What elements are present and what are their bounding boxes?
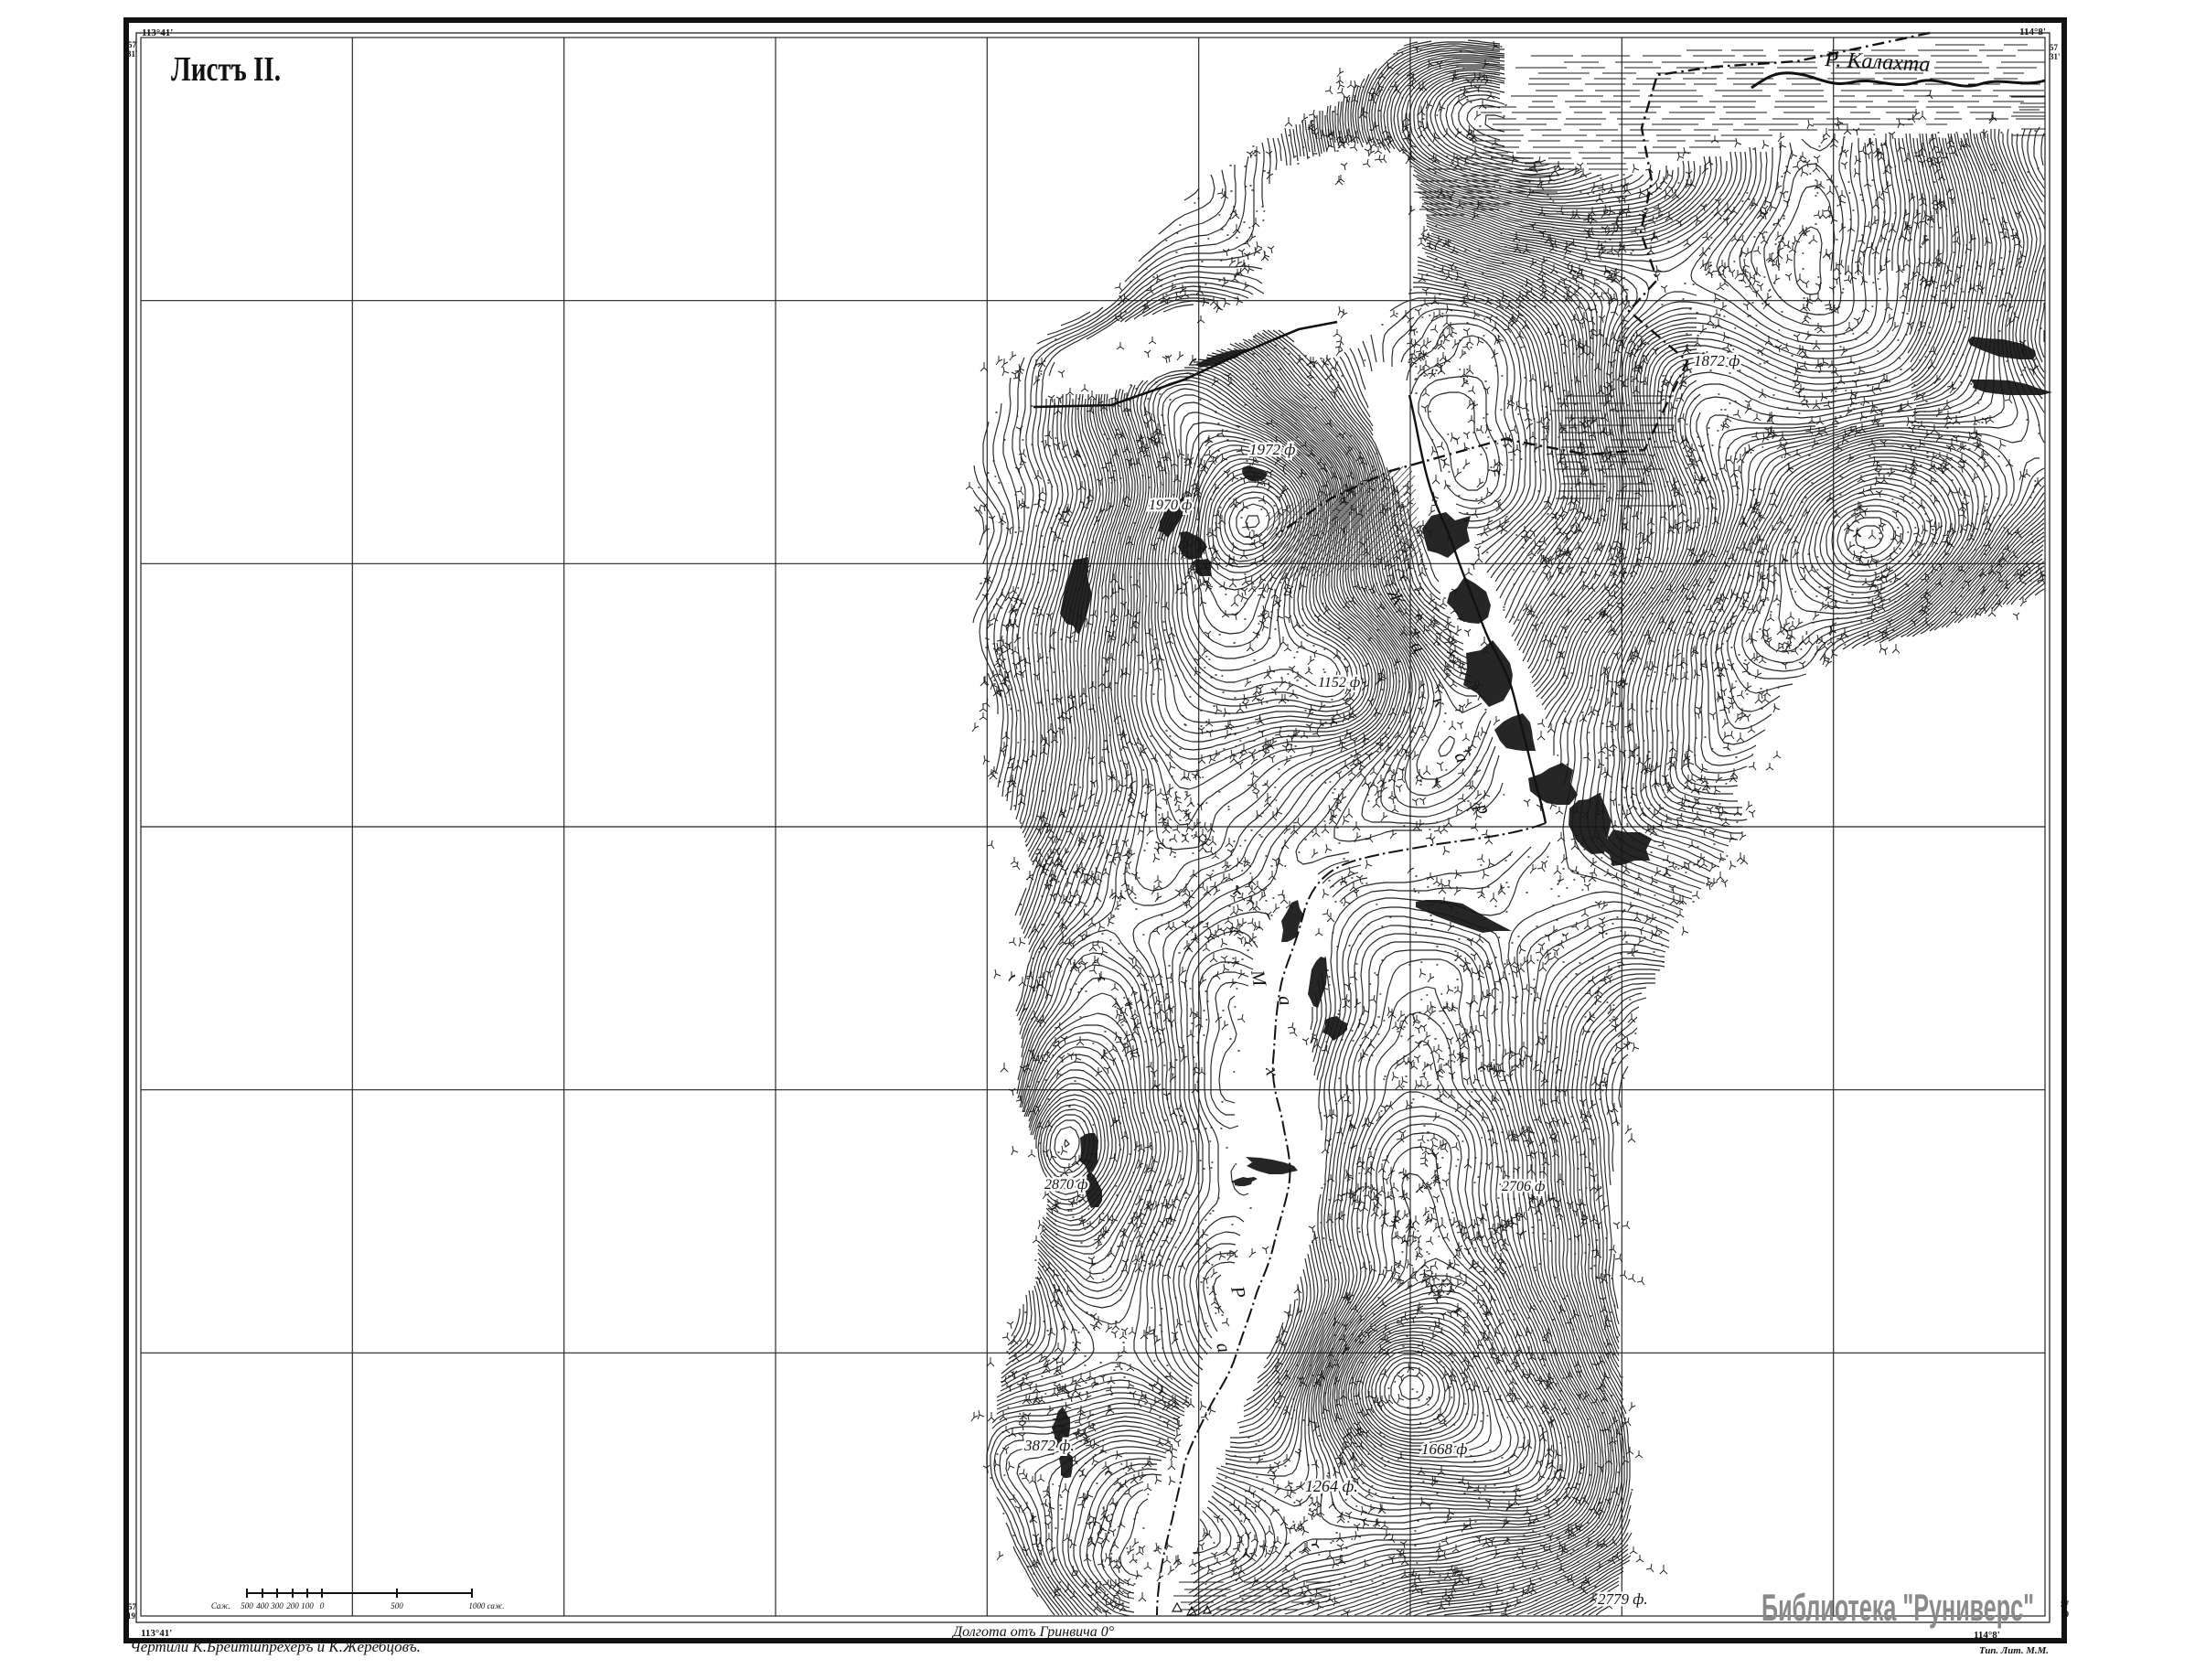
svg-text:57: 57	[128, 1602, 137, 1611]
svg-text:3872 ф.: 3872 ф.	[1023, 1437, 1075, 1454]
svg-text:Саж.: Саж.	[211, 1601, 230, 1610]
svg-text:19': 19'	[127, 1611, 138, 1621]
svg-text:57: 57	[2050, 43, 2059, 52]
svg-text:Долгота отъ Гринвича 0°: Долгота отъ Гринвича 0°	[951, 1624, 1115, 1640]
svg-text:57: 57	[128, 40, 137, 49]
svg-text:1668 ф: 1668 ф	[1421, 1440, 1467, 1458]
svg-text:114°8': 114°8'	[2019, 27, 2046, 37]
svg-text:Чертили К.Брейтшпрехеръ и К.Же: Чертили К.Брейтшпрехеръ и К.Жеребцовъ.	[130, 1638, 421, 1655]
svg-text:1152 ф: 1152 ф	[1318, 675, 1360, 690]
svg-text:2870 ф: 2870 ф	[1044, 1177, 1087, 1193]
svg-text:100: 100	[301, 1601, 314, 1610]
svg-text:31': 31'	[127, 49, 138, 59]
svg-text:2779 ф.: 2779 ф.	[1598, 1590, 1648, 1608]
svg-text:500: 500	[241, 1601, 253, 1610]
svg-text:Листъ II.: Листъ II.	[171, 50, 281, 89]
svg-text:19: 19	[2061, 1610, 2070, 1619]
svg-text:1970 ф: 1970 ф	[1149, 498, 1192, 513]
svg-text:400: 400	[256, 1601, 269, 1610]
svg-text:1264 ф.: 1264 ф.	[1305, 1477, 1358, 1495]
svg-text:57: 57	[2061, 1600, 2070, 1609]
svg-text:114°8': 114°8'	[1974, 1630, 2000, 1641]
svg-text:2706 ф: 2706 ф	[1502, 1179, 1545, 1194]
svg-text:1972 ф: 1972 ф	[1249, 441, 1295, 458]
svg-text:Библиотека "Руниверс": Библиотека "Руниверс"	[1761, 1586, 2034, 1629]
svg-text:0: 0	[320, 1601, 325, 1610]
svg-text:500: 500	[391, 1601, 403, 1610]
svg-text:1000 саж.: 1000 саж.	[468, 1601, 504, 1610]
svg-text:113°41': 113°41'	[142, 27, 173, 38]
svg-text:1872 ф: 1872 ф	[1694, 352, 1740, 369]
svg-text:200: 200	[286, 1601, 299, 1610]
svg-text:300: 300	[270, 1601, 284, 1610]
svg-text:31': 31'	[2050, 52, 2061, 61]
svg-text:Тип. Лит. М.М.: Тип. Лит. М.М.	[1979, 1645, 2049, 1656]
